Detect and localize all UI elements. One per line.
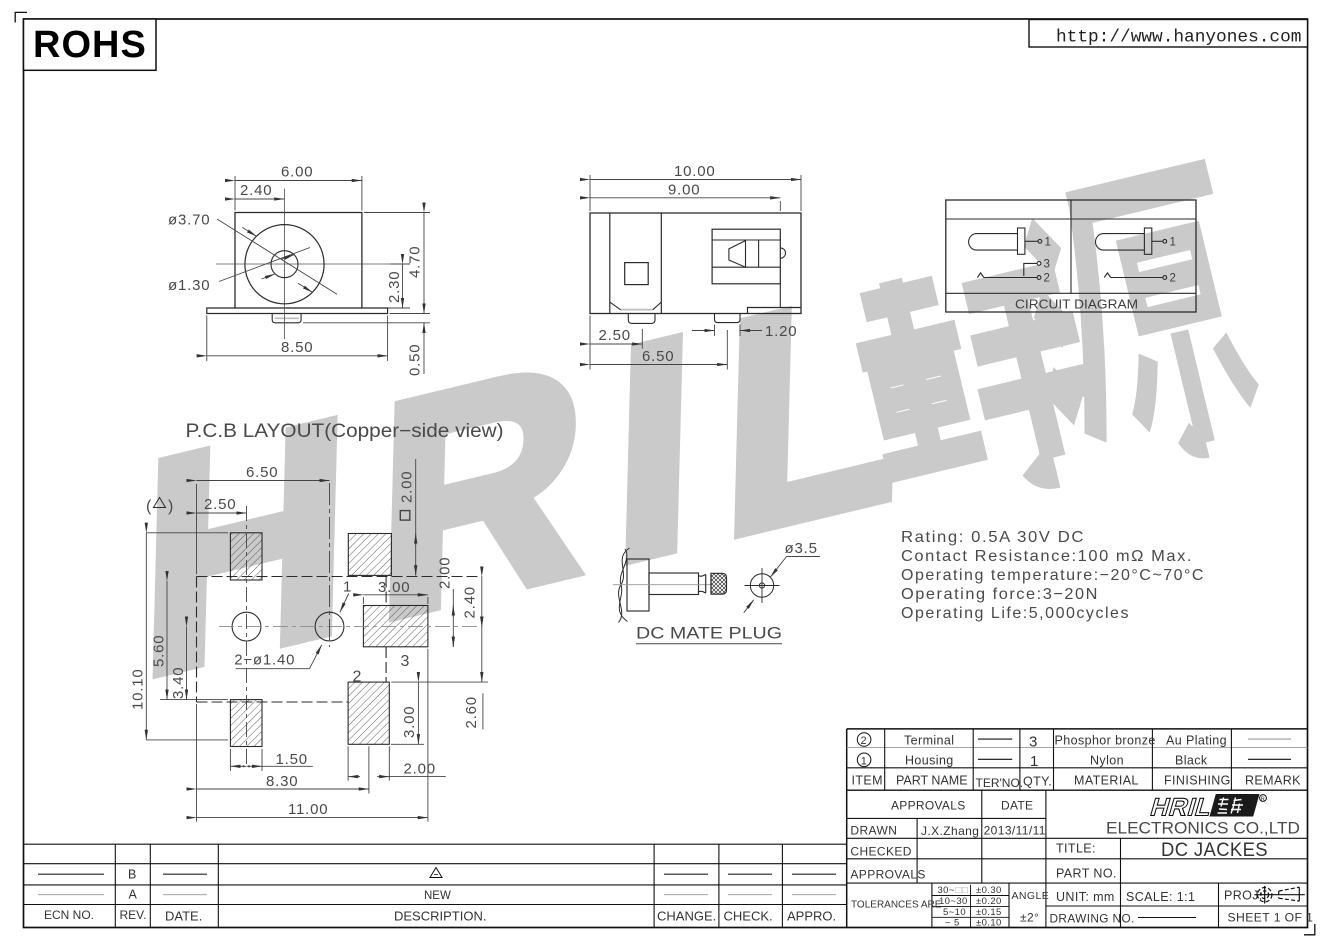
svg-text:B: B <box>128 868 136 882</box>
svg-text:10~30: 10~30 <box>939 896 968 907</box>
svg-text:ø3.70: ø3.70 <box>168 212 210 229</box>
svg-text:10.10: 10.10 <box>130 668 147 710</box>
svg-text:ø3.5: ø3.5 <box>785 540 818 557</box>
svg-text:ECN NO.: ECN NO. <box>44 908 94 922</box>
svg-text:DATE.: DATE. <box>165 909 202 924</box>
svg-text:8.30: 8.30 <box>266 773 298 790</box>
svg-text:2.40: 2.40 <box>462 586 479 618</box>
svg-text:CHECK.: CHECK. <box>724 909 773 924</box>
svg-text:ROHS: ROHS <box>33 24 147 66</box>
svg-text:1: 1 <box>1045 236 1051 248</box>
svg-text:6.50: 6.50 <box>246 464 278 481</box>
svg-text:APPROVALS: APPROVALS <box>850 867 925 881</box>
svg-text:±0.15: ±0.15 <box>976 907 1002 918</box>
svg-text:NEW: NEW <box>424 890 451 902</box>
svg-text:2.50: 2.50 <box>599 327 631 344</box>
svg-text:2.30: 2.30 <box>386 271 403 303</box>
svg-text:2.60: 2.60 <box>463 696 480 728</box>
svg-text:Housing: Housing <box>905 754 954 768</box>
svg-text:6.00: 6.00 <box>281 164 313 181</box>
svg-text:DESCRIPTION.: DESCRIPTION. <box>394 909 486 924</box>
svg-text:2013/11/11: 2013/11/11 <box>984 824 1046 838</box>
svg-text:8.50: 8.50 <box>281 339 313 356</box>
svg-text:6.50: 6.50 <box>642 348 674 365</box>
svg-text:4.70: 4.70 <box>407 246 424 278</box>
svg-text:3.00: 3.00 <box>378 579 410 596</box>
svg-text:DC MATE PLUG: DC MATE PLUG <box>636 624 782 643</box>
svg-text:ITEM: ITEM <box>852 774 883 788</box>
svg-text:R: R <box>1261 797 1265 803</box>
svg-text:±0.30: ±0.30 <box>976 885 1002 896</box>
svg-text:1.20: 1.20 <box>765 323 797 340</box>
svg-text:PART NO.: PART NO. <box>1056 867 1117 881</box>
svg-text:Rating: 0.5A 30V DC: Rating: 0.5A 30V DC <box>901 529 1085 546</box>
svg-text:Operating Life:5,000cycles: Operating Life:5,000cycles <box>901 605 1130 622</box>
svg-text:P.C.B LAYOUT(Copper−side view): P.C.B LAYOUT(Copper−side view) <box>186 420 504 442</box>
svg-text:2.00: 2.00 <box>399 471 416 503</box>
svg-text:CIRCUIT DIAGRAM: CIRCUIT DIAGRAM <box>1015 297 1138 312</box>
svg-text:~ 5: ~ 5 <box>945 918 960 929</box>
svg-text:2.40: 2.40 <box>240 182 272 199</box>
svg-text:TITLE:: TITLE: <box>1056 842 1096 856</box>
svg-text:±0.20: ±0.20 <box>976 896 1002 907</box>
svg-text:5.60: 5.60 <box>151 635 168 667</box>
svg-text:3: 3 <box>1029 734 1038 751</box>
svg-text:2.00: 2.00 <box>404 761 436 778</box>
svg-text:DC JACKES: DC JACKES <box>1161 840 1268 861</box>
svg-text:): ) <box>168 498 173 515</box>
svg-text:TER'NO.: TER'NO. <box>976 776 1024 790</box>
svg-text:3.00: 3.00 <box>401 706 418 738</box>
svg-text:REMARK: REMARK <box>1245 774 1301 788</box>
svg-text:3: 3 <box>1044 258 1050 270</box>
svg-text:3.40: 3.40 <box>170 667 187 699</box>
svg-text:QTY.: QTY. <box>1023 775 1052 789</box>
svg-text:5~10: 5~10 <box>943 907 966 918</box>
svg-text:http://www.hanyones.com: http://www.hanyones.com <box>1056 28 1301 48</box>
svg-text:2.00: 2.00 <box>437 557 454 589</box>
svg-text:2−ø1.40: 2−ø1.40 <box>234 652 295 669</box>
svg-text:(: ( <box>146 498 152 515</box>
svg-text:FINISHING: FINISHING <box>1164 774 1231 788</box>
svg-text:CHANGE.: CHANGE. <box>657 909 716 924</box>
svg-text:REV.: REV. <box>120 908 147 922</box>
svg-text:Nylon: Nylon <box>1090 754 1124 768</box>
svg-text:Phosphor bronze: Phosphor bronze <box>1055 733 1156 747</box>
svg-text:11.00: 11.00 <box>288 801 328 818</box>
svg-text:1: 1 <box>1170 236 1176 248</box>
svg-text:A: A <box>129 888 138 902</box>
svg-text:UNIT: mm: UNIT: mm <box>1056 890 1115 904</box>
svg-text:TOLERANCES ARE: TOLERANCES ARE <box>851 900 942 911</box>
svg-text:3: 3 <box>401 653 411 670</box>
svg-text:ANGLE: ANGLE <box>1012 890 1050 902</box>
svg-text:Black: Black <box>1175 754 1208 768</box>
svg-text:1: 1 <box>343 579 352 596</box>
svg-text:1: 1 <box>1030 753 1039 770</box>
svg-text:DRAWN: DRAWN <box>850 824 897 838</box>
svg-text:SCALE: 1:1: SCALE: 1:1 <box>1126 890 1195 904</box>
svg-text:30~: 30~ <box>938 885 955 896</box>
svg-text:±2°: ±2° <box>1020 911 1039 925</box>
svg-text:Terminal: Terminal <box>904 733 954 747</box>
svg-text:Contact Resistance:100 mΩ M: Contact Resistance:100 mΩ Max. <box>901 548 1193 565</box>
svg-text:APPROVALS: APPROVALS <box>891 799 966 813</box>
svg-text:ø1.30: ø1.30 <box>168 277 210 294</box>
svg-text:J.X.Zhang: J.X.Zhang <box>921 824 979 838</box>
svg-text:□□: □□ <box>956 885 969 896</box>
svg-text:2: 2 <box>861 735 868 747</box>
svg-text:ELECTRONICS CO.,LTD: ELECTRONICS CO.,LTD <box>1106 820 1300 838</box>
svg-text:1.50: 1.50 <box>276 751 308 768</box>
svg-text:2: 2 <box>1170 273 1176 285</box>
svg-text:SHEET 1 OF 1: SHEET 1 OF 1 <box>1228 910 1314 924</box>
svg-text:±0.10: ±0.10 <box>976 918 1002 929</box>
svg-text:DRAWING NO.: DRAWING NO. <box>1050 912 1135 926</box>
svg-text:Operating force:3−20N: Operating force:3−20N <box>901 586 1099 603</box>
svg-text:MATERIAL: MATERIAL <box>1074 774 1139 788</box>
svg-text:10.00: 10.00 <box>674 163 716 180</box>
svg-text:DATE: DATE <box>1001 799 1033 813</box>
svg-text:1: 1 <box>861 755 868 767</box>
svg-text:APPRO.: APPRO. <box>787 909 836 924</box>
svg-text:0.50: 0.50 <box>407 344 424 376</box>
svg-text:HRIL: HRIL <box>1147 794 1215 821</box>
svg-text:2: 2 <box>1044 273 1050 285</box>
svg-text:9.00: 9.00 <box>668 182 700 199</box>
svg-text:Au Plating: Au Plating <box>1166 733 1227 747</box>
svg-text:2.50: 2.50 <box>204 496 236 513</box>
svg-text:Operating temperature:−20°C~7: Operating temperature:−20°C~70°C <box>901 567 1205 584</box>
svg-text:CHECKED: CHECKED <box>850 845 911 859</box>
svg-text:PART NAME: PART NAME <box>896 774 968 788</box>
svg-text:2: 2 <box>353 669 363 686</box>
